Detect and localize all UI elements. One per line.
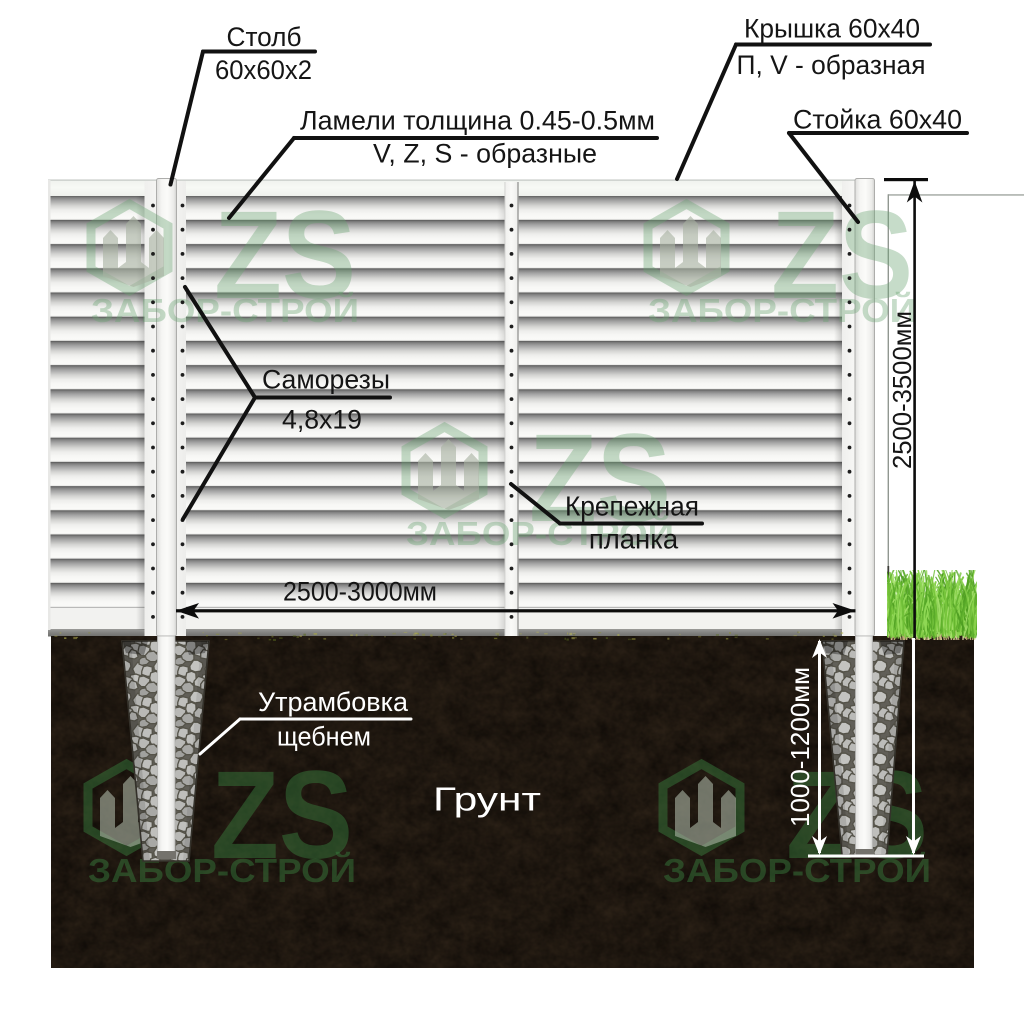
svg-text:Утрамбовка: Утрамбовка: [258, 687, 409, 717]
svg-text:Саморезы: Саморезы: [262, 365, 390, 395]
svg-text:60x60x2: 60x60x2: [215, 55, 312, 85]
svg-text:щебнем: щебнем: [277, 722, 371, 752]
svg-text:4,8x19: 4,8x19: [282, 405, 362, 435]
svg-text:П, V - образная: П, V - образная: [737, 50, 926, 80]
svg-text:Грунт: Грунт: [433, 781, 541, 818]
svg-text:Столб: Столб: [227, 22, 302, 52]
svg-text:Крепежная: Крепежная: [565, 491, 699, 522]
svg-text:Стойка 60x40: Стойка 60x40: [793, 105, 962, 135]
svg-text:1000-1200мм: 1000-1200мм: [785, 667, 815, 827]
svg-text:планка: планка: [589, 524, 679, 555]
svg-text:2500-3000мм: 2500-3000мм: [283, 577, 437, 607]
svg-text:Крышка 60x40: Крышка 60x40: [744, 14, 920, 44]
svg-text:Ламели толщина 0.45-0.5мм: Ламели толщина 0.45-0.5мм: [300, 106, 655, 136]
svg-text:2500-3500мм: 2500-3500мм: [887, 311, 917, 469]
svg-text:V, Z, S - образные: V, Z, S - образные: [373, 139, 597, 169]
